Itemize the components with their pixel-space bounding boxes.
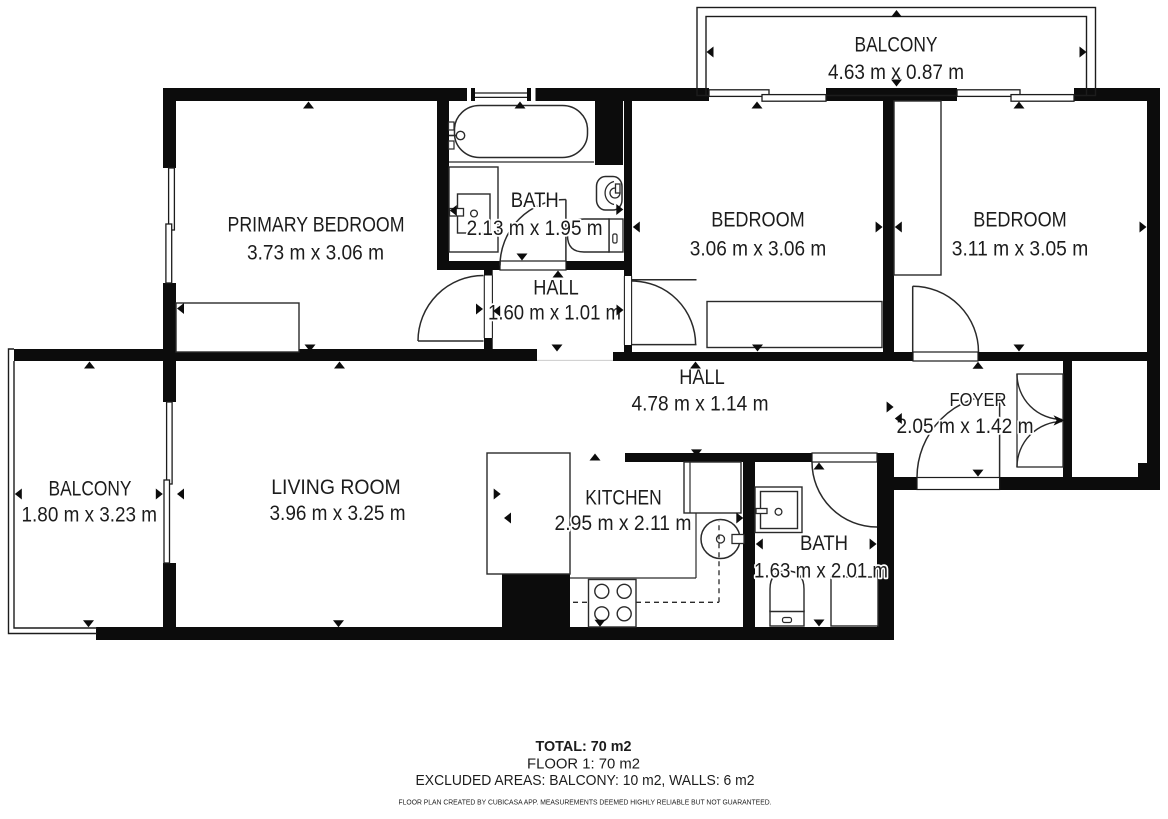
svg-text:BATH: BATH: [800, 532, 848, 555]
svg-text:HALL: HALL: [533, 277, 579, 300]
svg-text:1.63 m x 2.01 m: 1.63 m x 2.01 m: [754, 560, 888, 583]
svg-text:FOYER: FOYER: [950, 389, 1007, 410]
svg-text:1.60 m x 1.01 m: 1.60 m x 1.01 m: [488, 302, 621, 325]
svg-text:2.05 m x 1.42 m: 2.05 m x 1.42 m: [897, 415, 1034, 438]
svg-text:FLOOR PLAN CREATED BY CUBICASA: FLOOR PLAN CREATED BY CUBICASA APP. MEAS…: [399, 798, 772, 807]
svg-text:2.13 m x 1.95 m: 2.13 m x 1.95 m: [467, 217, 603, 240]
svg-text:EXCLUDED AREAS: BALCONY: 10 m2: EXCLUDED AREAS: BALCONY: 10 m2, WALLS: 6…: [416, 772, 755, 789]
svg-text:1.80 m x 3.23 m: 1.80 m x 3.23 m: [22, 504, 158, 527]
svg-text:3.06 m x 3.06 m: 3.06 m x 3.06 m: [690, 238, 827, 261]
svg-text:TOTAL: 70 m2: TOTAL: 70 m2: [536, 738, 632, 755]
svg-text:3.11 m x 3.05 m: 3.11 m x 3.05 m: [952, 238, 1089, 261]
svg-text:BALCONY: BALCONY: [49, 478, 132, 501]
svg-text:BEDROOM: BEDROOM: [973, 209, 1067, 232]
svg-text:KITCHEN: KITCHEN: [585, 487, 662, 510]
svg-text:BEDROOM: BEDROOM: [711, 209, 805, 232]
svg-text:3.73 m x 3.06 m: 3.73 m x 3.06 m: [247, 242, 384, 265]
svg-text:3.96 m x 3.25 m: 3.96 m x 3.25 m: [270, 502, 406, 525]
svg-text:PRIMARY BEDROOM: PRIMARY BEDROOM: [228, 214, 405, 237]
svg-text:2.95 m x 2.11 m: 2.95 m x 2.11 m: [555, 512, 692, 535]
svg-text:FLOOR 1: 70 m2: FLOOR 1: 70 m2: [527, 756, 640, 773]
svg-text:HALL: HALL: [679, 366, 725, 389]
svg-text:4.78 m x 1.14 m: 4.78 m x 1.14 m: [632, 393, 769, 416]
svg-text:BATH: BATH: [511, 189, 559, 212]
svg-text:LIVING ROOM: LIVING ROOM: [271, 476, 401, 499]
svg-text:BALCONY: BALCONY: [855, 34, 938, 57]
